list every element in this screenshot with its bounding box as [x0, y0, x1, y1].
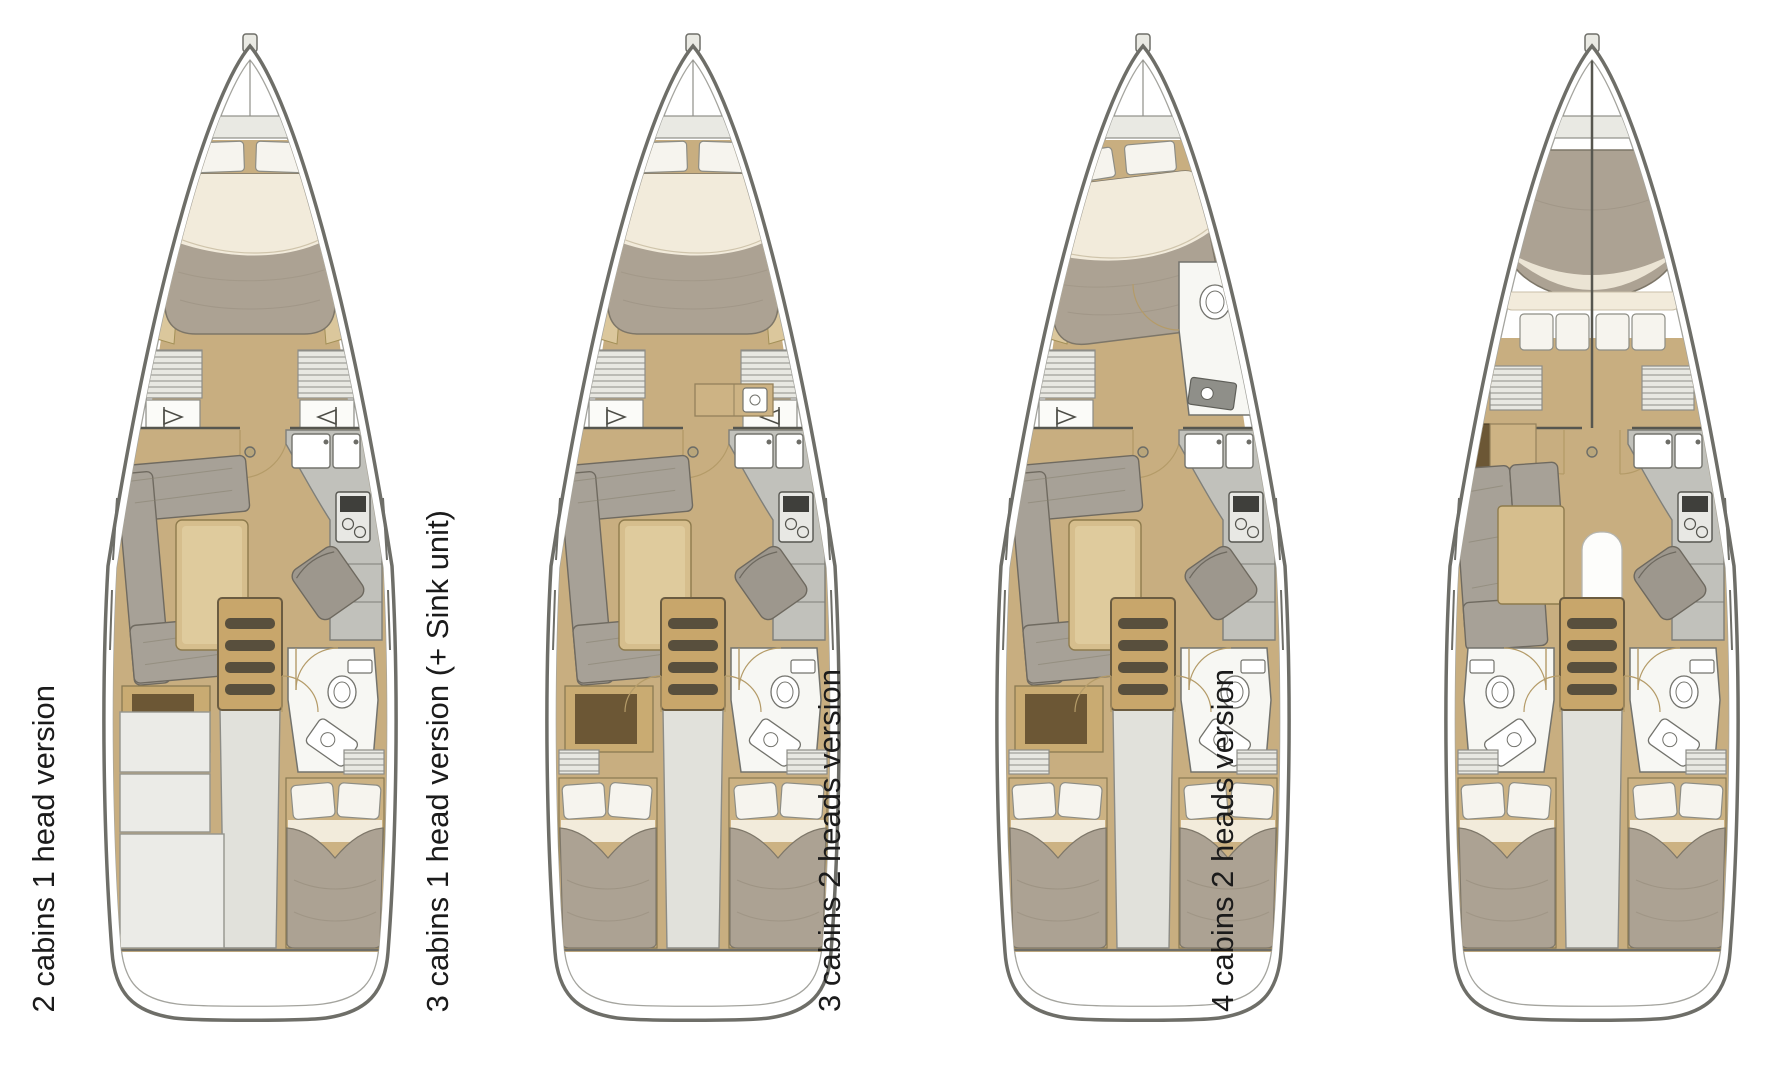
faucet-icon — [1696, 440, 1701, 445]
plan-label-1: 2 cabins 1 head version — [26, 685, 62, 1012]
interior — [1003, 50, 1283, 952]
pillow — [1507, 782, 1552, 820]
pillow — [1632, 314, 1665, 350]
vented-locker — [1237, 750, 1277, 774]
pillow — [1633, 782, 1678, 820]
anchor-locker — [120, 116, 380, 138]
settee-cushion — [1463, 597, 1548, 651]
aft-walkway — [1562, 710, 1622, 948]
galley-sink — [1675, 434, 1702, 468]
faucet-icon — [1217, 440, 1222, 445]
stair-step — [1118, 618, 1168, 629]
anchor-locker — [1013, 116, 1273, 138]
stove — [1229, 492, 1263, 542]
pillow — [1556, 314, 1589, 350]
stove — [779, 492, 813, 542]
pillow — [734, 782, 779, 820]
vented-locker — [559, 750, 599, 774]
companionway-stairs — [661, 598, 725, 710]
aft-cabin-port-bed — [559, 778, 657, 948]
companionway — [1111, 598, 1175, 948]
pillow — [1058, 782, 1103, 820]
companionway — [661, 598, 725, 948]
storage-room — [120, 774, 210, 832]
faucet-icon — [797, 440, 802, 445]
plan-label-4: 4 cabins 2 heads version — [1205, 669, 1241, 1012]
mast-foot — [1587, 447, 1597, 457]
chart-table — [1015, 686, 1103, 752]
galley-sink — [735, 434, 773, 468]
floorplan-sheet: 2 cabins 1 head version 3 cabins 1 head … — [0, 0, 1783, 1080]
stair-step — [1567, 684, 1617, 695]
storage-room — [120, 712, 210, 772]
faucet-icon — [354, 440, 359, 445]
aft-walkway — [663, 710, 723, 948]
stair-step — [668, 662, 718, 673]
fwd-sink-unit — [695, 384, 773, 416]
boat-floorplan-2 — [533, 0, 853, 1080]
pillow — [337, 783, 381, 820]
chart-table — [565, 686, 653, 752]
stair-step — [1118, 662, 1168, 673]
boat-floorplan-4 — [1432, 0, 1752, 1080]
plan-label-3: 3 cabins 2 heads version — [812, 669, 848, 1012]
basin — [743, 388, 767, 412]
vented-locker — [1490, 366, 1542, 410]
chart-table-top — [1025, 694, 1087, 744]
mast-foot — [245, 447, 255, 457]
pillow — [562, 783, 606, 820]
mast-foot — [1138, 447, 1148, 457]
stair-step — [668, 684, 718, 695]
aft-cabin-port-bed — [1009, 778, 1107, 948]
pillow — [291, 782, 336, 820]
boat-floorplan-1 — [90, 0, 410, 1080]
companionway — [1560, 598, 1624, 948]
stair-step — [225, 684, 275, 695]
pillow — [1124, 141, 1176, 175]
toilet-tank — [348, 660, 372, 673]
interior — [553, 50, 833, 952]
galley-sink — [776, 434, 803, 468]
stair-step — [668, 618, 718, 629]
galley-sink — [333, 434, 360, 468]
toilet-bowl — [771, 676, 799, 708]
faucet-icon — [767, 440, 772, 445]
pillow — [1461, 783, 1505, 820]
stair-step — [1118, 640, 1168, 651]
toilet-bowl — [328, 676, 356, 708]
stair-step — [225, 640, 275, 651]
stair-step — [1567, 618, 1617, 629]
companionway — [218, 598, 282, 948]
faucet-icon — [324, 440, 329, 445]
anchor-locker — [563, 116, 823, 138]
boat-floorplan-3 — [983, 0, 1303, 1080]
toilet-bowl — [1486, 676, 1514, 708]
aft-cabin-starboard-bed — [1628, 778, 1726, 948]
galley-sink — [292, 434, 330, 468]
toilet-tank — [1690, 660, 1714, 673]
chart-table-top — [575, 694, 637, 744]
stair-step — [225, 618, 275, 629]
galley-sink — [1226, 434, 1253, 468]
stair-step — [1567, 640, 1617, 651]
pillow — [1520, 314, 1553, 350]
aft-walkway — [220, 710, 280, 948]
pillow — [608, 782, 653, 820]
galley-sink — [1185, 434, 1223, 468]
stair-step — [1567, 662, 1617, 673]
pillow — [1012, 783, 1056, 820]
stove — [1678, 492, 1712, 542]
pillow — [1596, 314, 1629, 350]
salon-table — [1498, 506, 1564, 604]
pillow — [1679, 783, 1723, 820]
toilet-bowl — [1670, 676, 1698, 708]
companionway-stairs — [1111, 598, 1175, 710]
storage-room — [120, 834, 224, 948]
interior — [1452, 50, 1732, 952]
stair-step — [668, 640, 718, 651]
cabinet — [1490, 424, 1536, 468]
interior — [110, 50, 390, 952]
stove — [336, 492, 370, 542]
stair-step — [1118, 684, 1168, 695]
galley-sink — [1634, 434, 1672, 468]
companionway-stairs — [218, 598, 282, 710]
vented-locker — [1686, 750, 1726, 774]
aft-cabin-port-bed — [1458, 778, 1556, 948]
plan-label-2: 3 cabins 1 head version (+ Sink unit) — [420, 510, 456, 1012]
companionway-stairs — [1560, 598, 1624, 710]
aft-walkway — [1113, 710, 1173, 948]
stair-step — [225, 662, 275, 673]
aft-cabin-starboard-bed — [286, 778, 384, 948]
vented-locker — [1458, 750, 1498, 774]
vented-locker — [1642, 366, 1694, 410]
faucet-icon — [1247, 440, 1252, 445]
vented-locker — [1009, 750, 1049, 774]
mast-foot — [688, 447, 698, 457]
toilet-tank — [1241, 660, 1265, 673]
aft-storage — [120, 712, 224, 948]
faucet-icon — [1666, 440, 1671, 445]
head-sink-unit — [1188, 377, 1237, 410]
vented-locker — [344, 750, 384, 774]
toilet-tank — [1470, 660, 1494, 673]
